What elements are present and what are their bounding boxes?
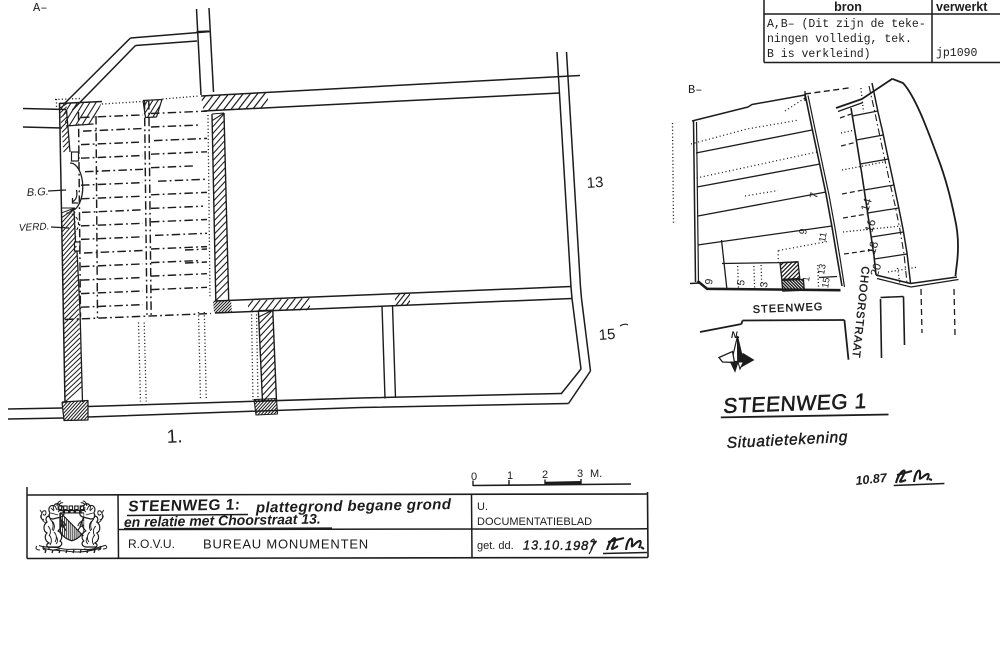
svg-text:VERD.: VERD.	[19, 221, 50, 234]
svg-text:get. dd.: get. dd.	[477, 540, 514, 552]
svg-text:U.: U.	[477, 501, 488, 513]
svg-text:1.: 1.	[166, 426, 183, 448]
svg-text:B–: B–	[688, 83, 702, 97]
svg-text:M.: M.	[590, 468, 602, 480]
svg-text:ningen volledig, tek.: ningen volledig, tek.	[767, 33, 912, 46]
svg-text:13: 13	[816, 263, 829, 275]
svg-text:verwerkt: verwerkt	[936, 0, 988, 14]
svg-text:2: 2	[542, 469, 548, 481]
svg-text:A–: A–	[33, 1, 47, 15]
svg-text:R.O.V.U.: R.O.V.U.	[128, 537, 175, 551]
svg-text:N.: N.	[731, 330, 740, 340]
svg-text:11: 11	[817, 231, 830, 243]
svg-text:0: 0	[471, 471, 477, 483]
svg-text:A,B– (Dit zijn de teke-: A,B– (Dit zijn de teke-	[767, 18, 926, 31]
svg-text:3: 3	[577, 468, 583, 480]
svg-text:15: 15	[820, 277, 833, 289]
svg-text:jp1090: jp1090	[936, 47, 978, 60]
svg-text:bron: bron	[834, 0, 862, 14]
svg-text:B is verkleind): B is verkleind)	[767, 48, 871, 61]
svg-text:1: 1	[507, 470, 513, 482]
svg-text:13.10.: 13.10.	[523, 539, 565, 553]
svg-text:DOCUMENTATIEBLAD: DOCUMENTATIEBLAD	[477, 516, 592, 528]
svg-text:BUREAU MONUMENTEN: BUREAU MONUMENTEN	[203, 537, 369, 552]
svg-text:13: 13	[586, 174, 604, 192]
svg-text:B.G.: B.G.	[27, 186, 50, 199]
svg-text:15: 15	[598, 326, 616, 344]
